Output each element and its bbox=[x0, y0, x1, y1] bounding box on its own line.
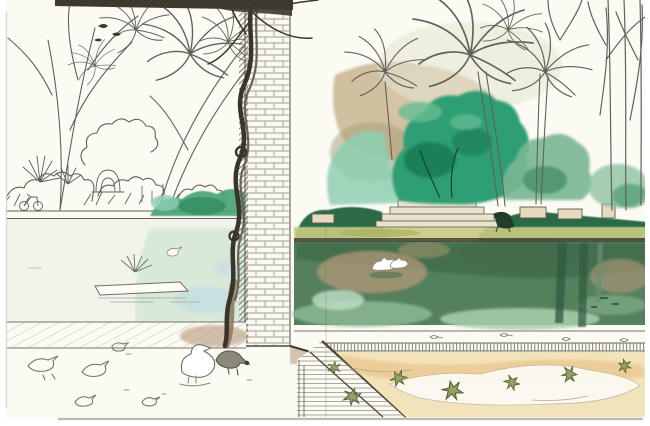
sketch-page bbox=[0, 0, 650, 426]
tick-border bbox=[320, 343, 646, 351]
park-watercolor-sketch bbox=[0, 0, 650, 426]
pond-rim bbox=[294, 238, 648, 242]
walkway-right bbox=[294, 330, 646, 351]
